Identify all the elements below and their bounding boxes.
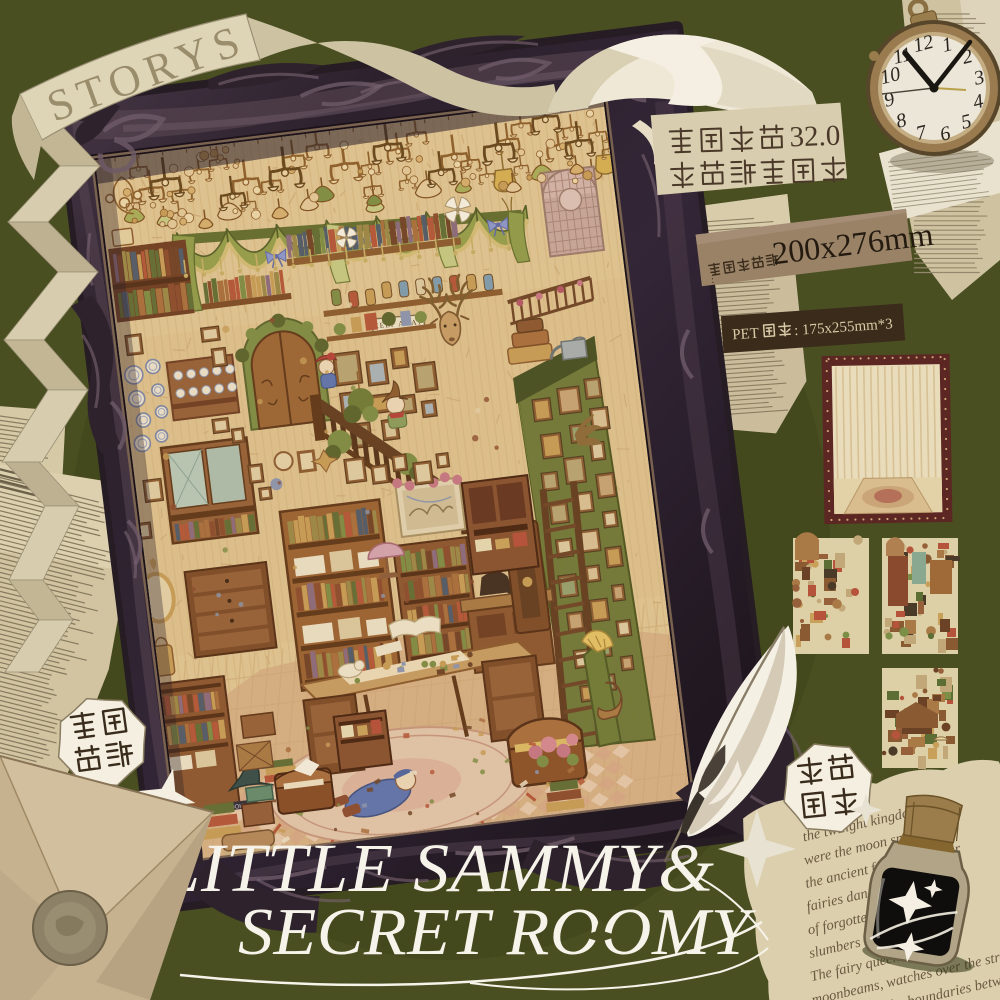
svg-text:32.0: 32.0 — [789, 120, 841, 154]
svg-text:SECRET ROOMY: SECRET ROOMY — [238, 894, 757, 968]
svg-text:PET: PET — [732, 326, 760, 344]
